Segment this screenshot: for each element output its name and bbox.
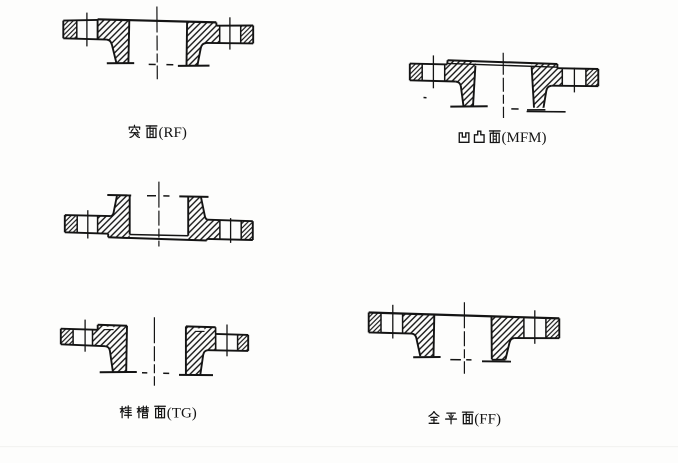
- svg-text:(RF): (RF): [159, 125, 187, 141]
- svg-text:(MFM): (MFM): [502, 130, 547, 146]
- svg-text:(FF): (FF): [474, 411, 501, 427]
- svg-text:(TG): (TG): [167, 406, 197, 422]
